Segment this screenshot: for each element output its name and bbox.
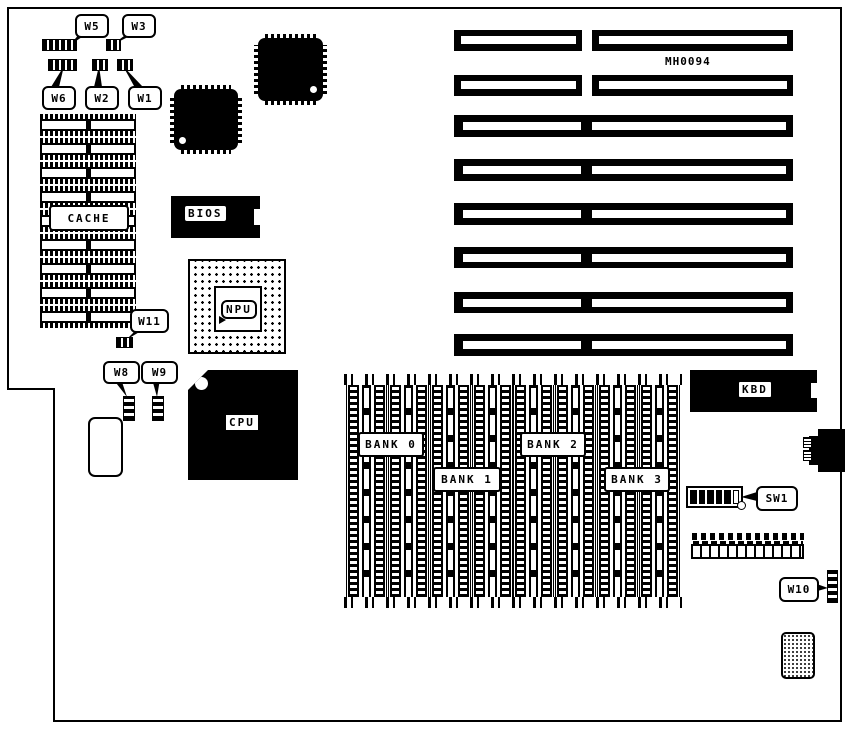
din-pin-header-1 <box>803 437 812 448</box>
jumper-w10-pins <box>827 570 838 603</box>
bank0-label: BANK 0 <box>358 432 424 457</box>
jumper-w11-pins <box>116 337 133 348</box>
isa-slot-segment <box>592 30 793 51</box>
jumper-label-w9: W9 <box>141 361 178 384</box>
isa-slot <box>454 159 793 181</box>
jumper-label-w3: W3 <box>122 14 156 38</box>
npu-socket: NPU <box>188 259 286 354</box>
isa-slot-segment <box>454 30 582 51</box>
isa-slot <box>454 247 793 268</box>
power-connector-pins <box>692 533 804 540</box>
dip-switch-position <box>707 490 714 504</box>
keyboard-controller-chip: KBD <box>690 370 817 412</box>
simm-latch-row-bottom <box>344 597 682 608</box>
jumper-label-w8: W8 <box>103 361 140 384</box>
dip-switch-sw1 <box>686 486 743 508</box>
dip-switch-position <box>699 490 706 504</box>
isa-slot <box>454 334 793 356</box>
kbd-socket-notch <box>811 383 819 398</box>
cache-label: CACHE <box>49 205 129 231</box>
bios-chip: BIOS <box>171 196 260 238</box>
pin1-arrow <box>219 316 226 324</box>
bios-socket-notch <box>254 209 262 225</box>
npu-label: NPU <box>221 300 257 319</box>
bios-label: BIOS <box>183 204 228 223</box>
speaker-component <box>781 632 815 679</box>
isa-slot <box>454 292 793 313</box>
cpu-chip: CPU <box>188 370 298 480</box>
npu-socket-center: NPU <box>214 286 262 332</box>
jumper-label-w6: W6 <box>42 86 76 110</box>
pin1-dot <box>195 377 208 390</box>
qfp-chip-1 <box>174 89 238 150</box>
dip-chip-row <box>40 306 136 328</box>
dip-chip-row <box>40 138 136 160</box>
dip-chip-row <box>40 162 136 184</box>
simm-socket <box>388 385 429 597</box>
isa-slot <box>454 203 793 225</box>
simm-socket <box>513 385 554 597</box>
jumper-label-w10: W10 <box>779 577 819 602</box>
jumper-w6-pins <box>48 59 77 71</box>
jumper-w8-pins <box>123 396 135 421</box>
jumper-w9-pins <box>152 396 164 421</box>
isa-slot-segment <box>592 75 793 96</box>
din-pin-header-2 <box>803 450 812 461</box>
jumper-w5-pins <box>42 39 77 51</box>
jumper-w1-pins <box>117 59 133 71</box>
dip-switch-position <box>690 490 697 504</box>
bank3-label: BANK 3 <box>604 467 670 492</box>
power-connector-housing <box>691 544 804 559</box>
crystal-component <box>88 417 123 477</box>
dip-chip-row <box>40 234 136 256</box>
switch-label-sw1: SW1 <box>756 486 798 511</box>
dip-chip-row <box>40 114 136 136</box>
jumper-w2-pins <box>92 59 108 71</box>
jumper-label-w11: W11 <box>130 309 169 333</box>
motherboard-diagram: W5 W3 W6 W2 W1 W11 W8 W9 SW1 W10 CACHE <box>0 0 850 732</box>
pin1-dot <box>310 86 317 93</box>
jumper-label-w5: W5 <box>75 14 109 38</box>
bank1-label: BANK 1 <box>433 467 501 492</box>
dip-switch-position <box>716 490 723 504</box>
dip-chip-row <box>40 282 136 304</box>
qfp-chip-2 <box>258 38 323 101</box>
jumper-label-w2: W2 <box>85 86 119 110</box>
board-part-number: MH0094 <box>665 55 711 68</box>
simm-socket <box>555 385 596 597</box>
isa-slot-segment <box>454 75 582 96</box>
pin1-dot <box>179 137 186 144</box>
kbd-label: KBD <box>738 381 772 398</box>
jumper-w3-pins <box>106 39 121 51</box>
cpu-label: CPU <box>226 415 258 430</box>
dip-switch-position <box>724 490 731 504</box>
sw1-corner-dot <box>737 501 746 510</box>
isa-slot <box>454 115 793 137</box>
simm-socket <box>346 385 387 597</box>
bank2-label: BANK 2 <box>520 432 586 457</box>
dip-chip-row <box>40 258 136 280</box>
jumper-label-w1: W1 <box>128 86 162 110</box>
simm-latch-row-top <box>344 374 682 385</box>
din-connector-body <box>818 429 845 472</box>
